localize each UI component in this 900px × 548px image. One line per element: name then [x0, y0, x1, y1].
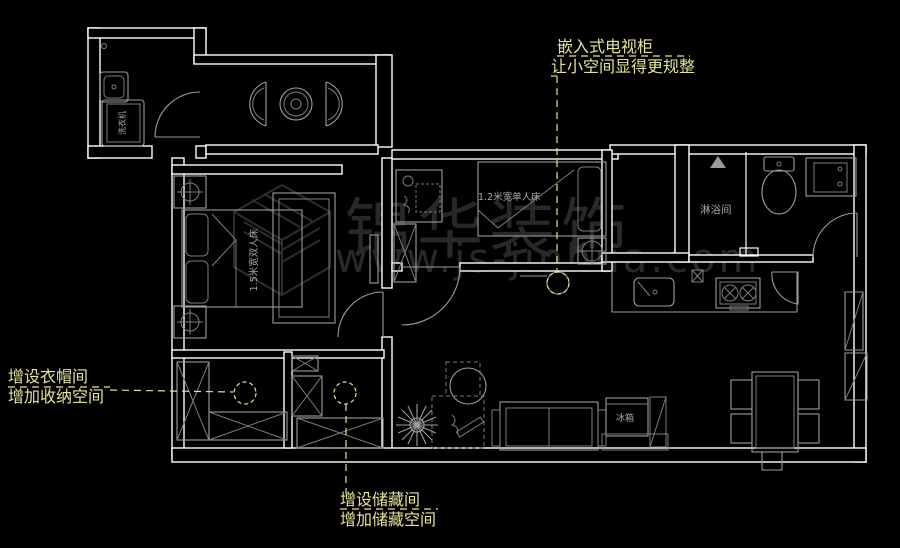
annotation-cloakroom-target: [234, 382, 256, 404]
floorplan-canvas: 锦华装饰 www.js-jinhua.com: [0, 0, 900, 548]
label-double-bed: 1.5米宽双人床: [248, 228, 260, 291]
storage-cabinet-bottom: [297, 418, 383, 448]
chair-right: [326, 82, 342, 126]
kitchen-sink: [634, 278, 674, 306]
double-bed: 1.5米宽双人床: [182, 210, 302, 307]
pillow: [186, 214, 208, 256]
plant: [396, 404, 438, 446]
fridge: 冰箱: [602, 397, 668, 450]
chair: [731, 414, 752, 443]
label-fridge: 冰箱: [616, 412, 634, 424]
pillow: [186, 261, 208, 303]
washing-machine: 洗衣机: [102, 100, 144, 146]
annotation-storage-line1: 增设储藏间: [340, 490, 420, 509]
annotation-storage-target: [334, 382, 356, 404]
annotation-cloakroom-line1: 增设衣帽间: [8, 367, 88, 386]
annotation-cloakroom: 增设衣帽间 增加收纳空间: [8, 367, 256, 406]
dining-area: 冰箱: [602, 292, 867, 470]
chair: [798, 414, 819, 443]
chair: [798, 380, 819, 409]
drain-symbol: [102, 44, 107, 49]
shower-head-icon: [710, 156, 726, 168]
dining-table-set: [731, 372, 819, 452]
label-shower-room: 淋浴间: [700, 203, 732, 216]
annotation-tv-line1: 嵌入式电视柜: [557, 37, 653, 56]
bathroom: 淋浴间: [700, 156, 856, 216]
cloakroom-cabinet-bottom: [209, 412, 287, 440]
washbasin: [806, 158, 856, 196]
annotation-storage-line2: 增加储藏空间: [340, 510, 436, 529]
cloakroom: [177, 362, 287, 440]
label-washer: 洗衣机: [117, 111, 127, 135]
floorplan-drawing: 锦华装饰 www.js-jinhua.com: [0, 0, 900, 548]
balcony-table-set: [250, 82, 343, 126]
annotation-tv-line2: 让小空间显得更规整: [551, 57, 695, 76]
living-room: [396, 362, 606, 450]
coffee-table-dashed: [432, 362, 484, 448]
toilet: [762, 157, 796, 214]
label-single-bed: 1.2米宽单人床: [478, 191, 541, 203]
sofa: [492, 402, 606, 450]
round-table: [280, 88, 312, 120]
chair: [731, 380, 752, 409]
chair-left: [250, 82, 266, 126]
storage-room: [292, 356, 383, 448]
bathroom-door: [813, 213, 857, 257]
round-rug: [450, 368, 486, 404]
kitchen-door-swing: [772, 272, 798, 304]
storage-wardrobe: [292, 376, 322, 416]
laundry-door: [155, 92, 200, 137]
stove: [716, 278, 760, 310]
master-bedroom-door: [338, 292, 383, 337]
annotation-cloakroom-line2: 增加收纳空间: [8, 387, 104, 406]
laundry-room: 洗衣机: [100, 44, 144, 147]
